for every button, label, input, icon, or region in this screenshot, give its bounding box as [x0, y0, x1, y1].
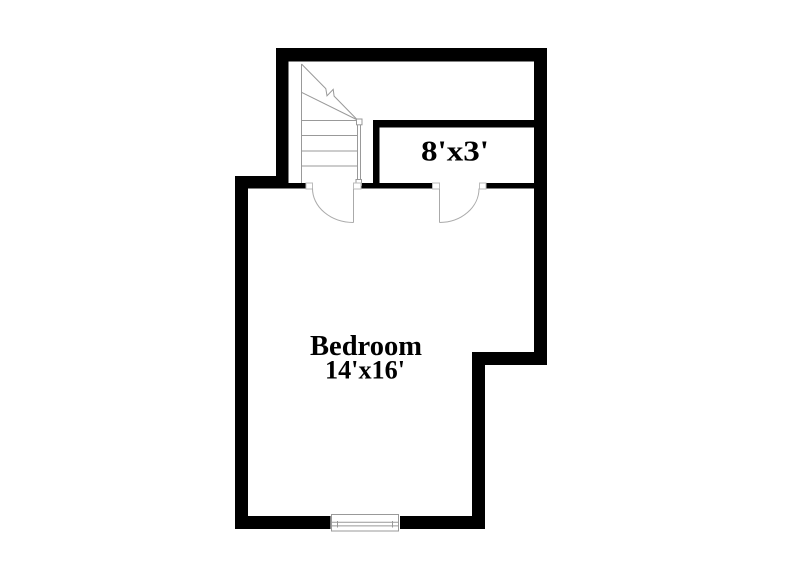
svg-text:8'x3': 8'x3' — [421, 136, 489, 168]
svg-text:14'x16': 14'x16' — [325, 356, 405, 385]
